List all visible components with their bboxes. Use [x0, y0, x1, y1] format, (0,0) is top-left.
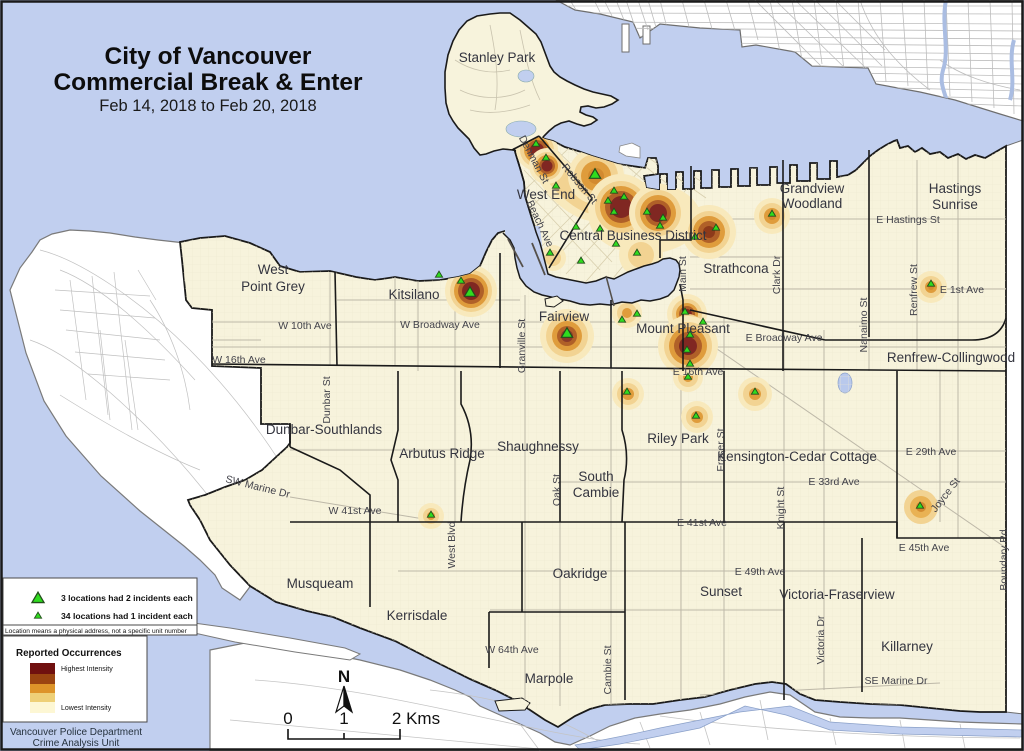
svg-text:W 16th Ave: W 16th Ave [212, 354, 266, 366]
svg-text:West Blvd: West Blvd [446, 521, 458, 568]
svg-text:E 33rd Ave: E 33rd Ave [808, 476, 859, 488]
svg-text:West End: West End [517, 187, 575, 202]
svg-text:E 29th Ave: E 29th Ave [906, 446, 957, 458]
svg-text:Mount Pleasant: Mount Pleasant [636, 321, 730, 336]
svg-text:Victoria-Fraserview: Victoria-Fraserview [779, 587, 895, 602]
svg-text:W 41st Ave: W 41st Ave [329, 505, 382, 517]
svg-text:Riley Park: Riley Park [647, 431, 709, 446]
svg-text:E 45th Ave: E 45th Ave [899, 542, 950, 554]
svg-text:Kerrisdale: Kerrisdale [387, 608, 448, 623]
svg-text:Crime Analysis Unit: Crime Analysis Unit [33, 738, 120, 749]
svg-text:Strathcona: Strathcona [703, 261, 769, 276]
svg-text:Reported Occurrences: Reported Occurrences [16, 648, 122, 659]
svg-text:Boundary Rd: Boundary Rd [998, 529, 1010, 590]
svg-text:Killarney: Killarney [881, 639, 933, 654]
svg-text:E 16th Ave: E 16th Ave [673, 366, 724, 378]
svg-text:Woodland: Woodland [782, 196, 843, 211]
svg-text:34 locations had 1 incident ea: 34 locations had 1 incident each [61, 611, 193, 621]
svg-text:SE Marine Dr: SE Marine Dr [864, 675, 928, 687]
svg-text:Point Grey: Point Grey [241, 279, 305, 294]
svg-text:Sunset: Sunset [700, 584, 742, 599]
svg-text:Kitsilano: Kitsilano [388, 287, 439, 302]
svg-text:E 49th Ave: E 49th Ave [735, 566, 786, 578]
svg-text:Arbutus Ridge: Arbutus Ridge [399, 446, 485, 461]
svg-text:City of Vancouver: City of Vancouver [105, 43, 312, 70]
svg-text:N: N [338, 667, 350, 686]
svg-text:W 10th Ave: W 10th Ave [278, 320, 332, 332]
svg-text:South: South [578, 469, 613, 484]
svg-text:Granville St: Granville St [516, 319, 528, 373]
svg-text:Clark Dr: Clark Dr [771, 255, 783, 294]
svg-text:Shaughnessy: Shaughnessy [497, 439, 579, 454]
svg-text:Main St: Main St [677, 256, 689, 292]
svg-text:Victoria Dr: Victoria Dr [815, 615, 827, 664]
svg-text:Commercial Break & Enter: Commercial Break & Enter [53, 69, 363, 96]
svg-text:1: 1 [339, 709, 348, 728]
svg-text:Central Business District: Central Business District [559, 228, 706, 243]
svg-text:Dunbar St: Dunbar St [321, 376, 333, 423]
svg-text:2 Kms: 2 Kms [392, 709, 440, 728]
svg-text:Location means a physical addr: Location means a physical address, not a… [5, 628, 188, 635]
svg-text:Marpole: Marpole [525, 671, 574, 686]
svg-text:Sunrise: Sunrise [932, 197, 978, 212]
svg-text:Kensington-Cedar Cottage: Kensington-Cedar Cottage [717, 449, 877, 464]
svg-text:Feb 14, 2018 to Feb 20, 2018: Feb 14, 2018 to Feb 20, 2018 [99, 97, 316, 115]
svg-text:Stanley Park: Stanley Park [459, 50, 536, 65]
svg-text:Renfrew St: Renfrew St [908, 264, 920, 316]
svg-text:Musqueam: Musqueam [287, 576, 354, 591]
svg-text:West: West [258, 262, 289, 277]
svg-text:0: 0 [283, 709, 292, 728]
svg-text:Lowest Intensity: Lowest Intensity [61, 705, 112, 712]
svg-text:Nanaimo St: Nanaimo St [858, 297, 870, 352]
svg-text:E Broadway Ave: E Broadway Ave [746, 332, 823, 344]
svg-text:3 locations had 2 incidents ea: 3 locations had 2 incidents each [61, 593, 193, 603]
svg-text:E 1st Ave: E 1st Ave [940, 284, 984, 296]
svg-text:Hastings: Hastings [929, 181, 982, 196]
svg-text:Grandview: Grandview [780, 181, 845, 196]
svg-text:Cambie St: Cambie St [602, 645, 614, 694]
svg-text:W Broadway Ave: W Broadway Ave [400, 319, 480, 331]
svg-text:Oakridge: Oakridge [553, 566, 608, 581]
svg-text:Fraser St: Fraser St [715, 428, 727, 471]
svg-text:Renfrew-Collingwood: Renfrew-Collingwood [887, 350, 1015, 365]
svg-text:Vancouver Police Department: Vancouver Police Department [10, 727, 142, 738]
svg-text:E Hastings St: E Hastings St [876, 214, 940, 226]
svg-text:Knight St: Knight St [775, 487, 787, 530]
svg-text:Cambie: Cambie [573, 485, 620, 500]
svg-text:E 41st Ave: E 41st Ave [677, 517, 727, 529]
svg-text:W 64th Ave: W 64th Ave [485, 644, 539, 656]
svg-text:Fairview: Fairview [539, 309, 590, 324]
svg-text:Highest Intensity: Highest Intensity [61, 666, 113, 673]
svg-text:Oak St: Oak St [551, 474, 563, 506]
